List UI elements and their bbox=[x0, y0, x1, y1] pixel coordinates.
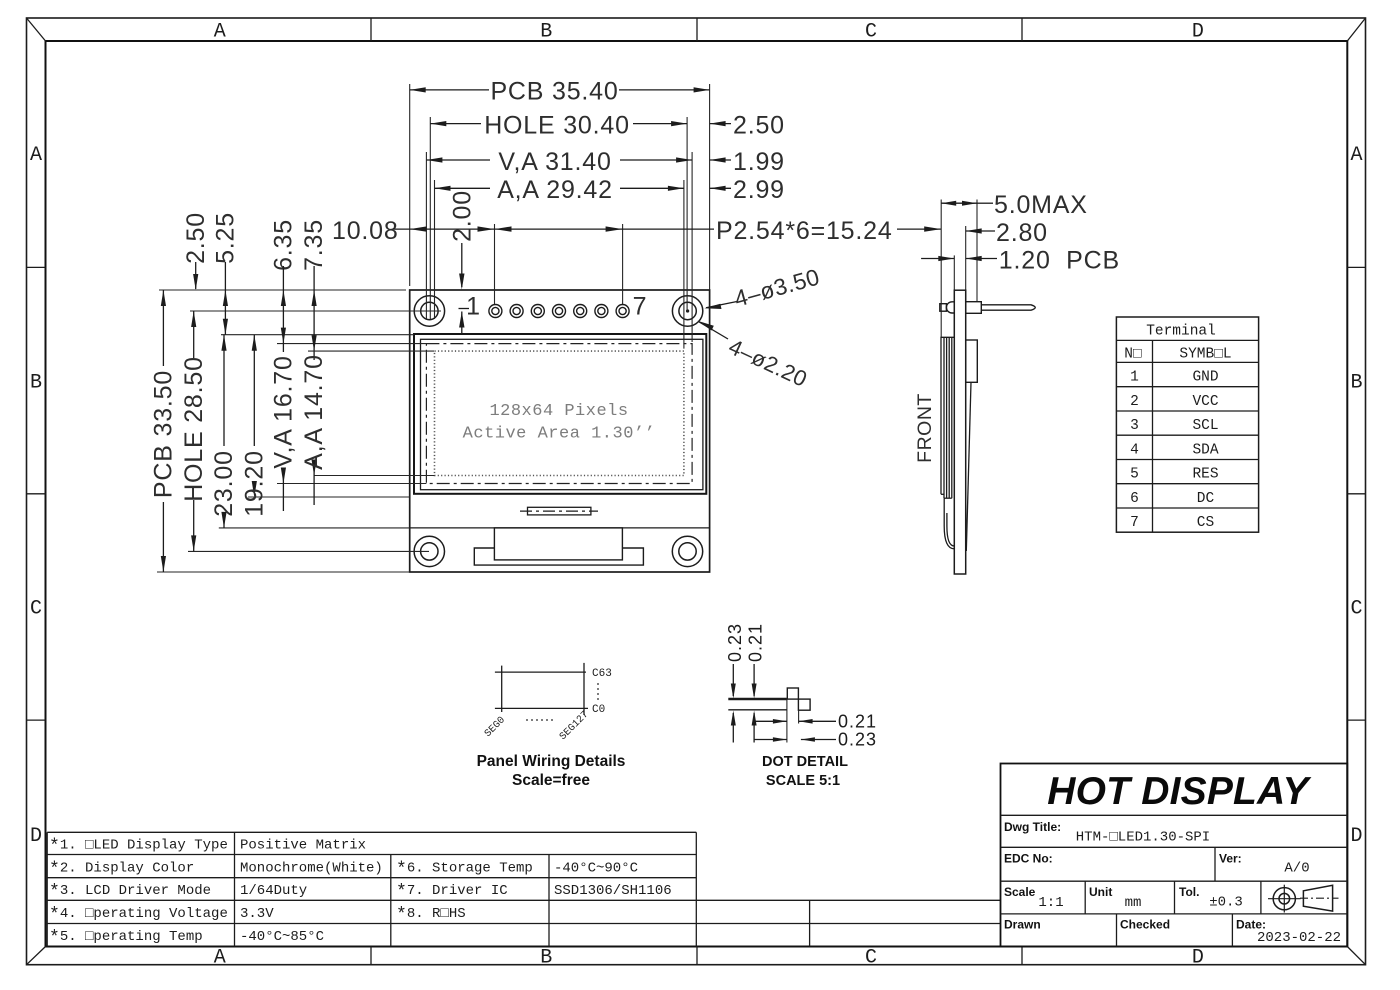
svg-text:1:1: 1:1 bbox=[1038, 895, 1063, 911]
svg-text:1: 1 bbox=[1130, 370, 1139, 386]
svg-text:SSD1306/SH1106: SSD1306/SH1106 bbox=[554, 883, 672, 899]
svg-text:CS: CS bbox=[1197, 515, 1214, 531]
svg-text:Unit: Unit bbox=[1089, 885, 1112, 899]
svg-text:HOLE 30.40: HOLE 30.40 bbox=[484, 111, 630, 139]
svg-text:SCL: SCL bbox=[1192, 418, 1218, 434]
svg-text:D: D bbox=[1192, 21, 1204, 44]
svg-text:A: A bbox=[30, 144, 42, 167]
svg-text:0.23: 0.23 bbox=[838, 730, 877, 750]
svg-text:V,A 31.40: V,A 31.40 bbox=[498, 148, 611, 176]
svg-text:Positive Matrix: Positive Matrix bbox=[240, 838, 366, 854]
svg-text:4: 4 bbox=[1130, 442, 1139, 458]
svg-text:A: A bbox=[1350, 144, 1362, 167]
svg-text:5.0MAX: 5.0MAX bbox=[994, 191, 1088, 219]
svg-text:A/0: A/0 bbox=[1284, 861, 1309, 877]
svg-text:A,A 14.70: A,A 14.70 bbox=[300, 354, 328, 470]
svg-text:DC: DC bbox=[1197, 491, 1215, 507]
svg-text:mm: mm bbox=[1125, 895, 1142, 911]
svg-text:2.50: 2.50 bbox=[182, 212, 210, 264]
svg-text:3: 3 bbox=[1130, 418, 1139, 434]
svg-text:6.35: 6.35 bbox=[270, 219, 298, 271]
svg-text:A: A bbox=[214, 21, 226, 44]
svg-text:HTM-□LED1.30-SPI: HTM-□LED1.30-SPI bbox=[1076, 830, 1210, 846]
svg-text:C: C bbox=[865, 947, 877, 970]
svg-text:P2.54*6=15.24: P2.54*6=15.24 bbox=[716, 217, 893, 245]
svg-text:Ver:: Ver: bbox=[1219, 852, 1242, 866]
svg-text:B: B bbox=[1350, 372, 1362, 395]
svg-text:A: A bbox=[214, 947, 226, 970]
svg-text:1.20 PCB: 1.20 PCB bbox=[999, 246, 1120, 274]
svg-text:D: D bbox=[1350, 825, 1362, 848]
svg-text:6: 6 bbox=[1130, 491, 1139, 507]
svg-text:Drawn: Drawn bbox=[1004, 918, 1041, 932]
svg-text:D: D bbox=[30, 825, 42, 848]
svg-text:B: B bbox=[540, 947, 552, 970]
svg-text:SDA: SDA bbox=[1192, 442, 1218, 458]
svg-text:HOLE 28.50: HOLE 28.50 bbox=[180, 356, 208, 502]
svg-text:Scale: Scale bbox=[1004, 885, 1036, 899]
svg-text:2023-02-22: 2023-02-22 bbox=[1257, 930, 1341, 946]
svg-text:19.20: 19.20 bbox=[240, 450, 268, 517]
svg-text:5.25: 5.25 bbox=[212, 212, 240, 264]
svg-text:PCB 35.40: PCB 35.40 bbox=[490, 78, 618, 106]
svg-text:GND: GND bbox=[1192, 370, 1218, 386]
svg-text:2: 2 bbox=[1130, 394, 1139, 410]
svg-text:23.00: 23.00 bbox=[210, 450, 238, 517]
svg-text:SYMB□L: SYMB□L bbox=[1179, 347, 1231, 363]
svg-text:7: 7 bbox=[633, 293, 648, 321]
svg-text:2.80: 2.80 bbox=[996, 219, 1048, 247]
svg-text:B: B bbox=[540, 21, 552, 44]
svg-text:128x64 Pixels: 128x64 Pixels bbox=[489, 402, 628, 421]
svg-text:C63: C63 bbox=[592, 668, 612, 680]
svg-text:Terminal: Terminal bbox=[1146, 324, 1216, 340]
svg-text:B: B bbox=[30, 372, 42, 395]
svg-text:10.08: 10.08 bbox=[332, 217, 399, 245]
svg-text:D: D bbox=[1192, 947, 1204, 970]
svg-text:Panel Wiring Details: Panel Wiring Details bbox=[477, 753, 626, 770]
svg-text:2.99: 2.99 bbox=[733, 176, 785, 204]
svg-text:Dwg Title:: Dwg Title: bbox=[1004, 820, 1061, 834]
svg-text:Checked: Checked bbox=[1120, 918, 1170, 932]
svg-text:Tol.: Tol. bbox=[1179, 885, 1199, 899]
svg-text:EDC No:: EDC No: bbox=[1004, 852, 1053, 866]
svg-text:A,A 29.42: A,A 29.42 bbox=[497, 176, 613, 204]
svg-text:Monochrome(White): Monochrome(White) bbox=[240, 860, 383, 876]
svg-text:±0.3: ±0.3 bbox=[1209, 895, 1243, 911]
svg-text:C: C bbox=[1350, 598, 1362, 621]
svg-text:SCALE 5:1: SCALE 5:1 bbox=[766, 773, 840, 789]
svg-text:5: 5 bbox=[1130, 467, 1139, 483]
svg-text:N□: N□ bbox=[1124, 347, 1142, 363]
svg-text:0.21: 0.21 bbox=[838, 711, 877, 731]
svg-text:HOT DISPLAY: HOT DISPLAY bbox=[1047, 770, 1311, 813]
svg-text:1.99: 1.99 bbox=[733, 148, 785, 176]
svg-text:2.00: 2.00 bbox=[449, 190, 477, 242]
svg-text:-40°C~90°C: -40°C~90°C bbox=[554, 860, 638, 876]
svg-text:-40°C~85°C: -40°C~85°C bbox=[240, 929, 324, 945]
svg-text:FRONT: FRONT bbox=[914, 393, 936, 463]
svg-text:7.35: 7.35 bbox=[300, 219, 328, 271]
svg-text:7: 7 bbox=[1130, 515, 1139, 531]
svg-text:DOT DETAIL: DOT DETAIL bbox=[762, 754, 848, 770]
svg-text:Scale=free: Scale=free bbox=[512, 772, 590, 789]
svg-text:Active Area 1.30’’: Active Area 1.30’’ bbox=[463, 425, 656, 444]
svg-text:PCB 33.50: PCB 33.50 bbox=[150, 370, 178, 498]
svg-text:C0: C0 bbox=[592, 704, 605, 716]
svg-text:2.50: 2.50 bbox=[733, 111, 785, 139]
svg-text:1/64Duty: 1/64Duty bbox=[240, 883, 307, 899]
svg-text:C: C bbox=[865, 21, 877, 44]
svg-text:3.3V: 3.3V bbox=[240, 906, 274, 922]
svg-text:0.23: 0.23 bbox=[725, 623, 745, 662]
svg-text:VCC: VCC bbox=[1192, 394, 1218, 410]
svg-text:V,A 16.70: V,A 16.70 bbox=[270, 355, 298, 468]
svg-text:0.21: 0.21 bbox=[746, 623, 766, 662]
svg-text:C: C bbox=[30, 598, 42, 621]
svg-text:RES: RES bbox=[1192, 467, 1218, 483]
svg-text:1: 1 bbox=[466, 293, 481, 321]
